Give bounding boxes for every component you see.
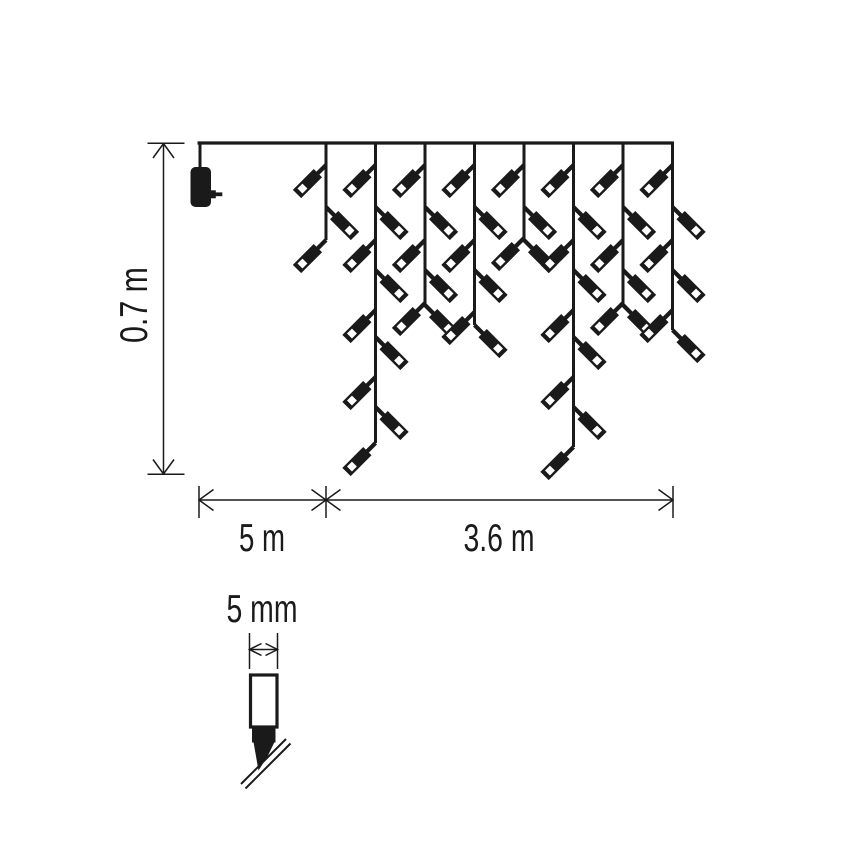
icicle-lights-diagram: 0.7 m 5 m 3.6 m 5 mm [0, 0, 868, 868]
led-bulb-icon [590, 299, 627, 336]
lead-length-label: 5 m [239, 517, 285, 560]
dimension-drop-height: 0.7 m [113, 143, 185, 474]
bulb-detail: 5 mm [227, 588, 298, 789]
lit-length-label: 3.6 m [464, 517, 535, 560]
led-bulb-detail-icon [241, 675, 291, 789]
plug-prong [210, 190, 216, 198]
led-bulb-icon [293, 236, 330, 273]
led-bulb-icon [470, 321, 507, 358]
bulb-socket [252, 727, 276, 743]
bulb-width-label: 5 mm [227, 588, 298, 631]
led-bulb-icon [668, 326, 705, 363]
power-adapter-icon [191, 144, 223, 207]
drop-height-label: 0.7 m [113, 267, 156, 343]
bulb-tip [254, 742, 275, 771]
dimension-lengths: 5 m 3.6 m [199, 486, 673, 560]
bulb-body [251, 675, 278, 727]
diagram-page: 0.7 m 5 m 3.6 m 5 mm [0, 0, 868, 868]
led-bulb-icon [540, 443, 577, 480]
led-bulb-icon [392, 299, 429, 336]
led-bulb-icon [491, 234, 528, 271]
curtain-group [198, 142, 706, 481]
led-bulb-icon [342, 439, 379, 476]
